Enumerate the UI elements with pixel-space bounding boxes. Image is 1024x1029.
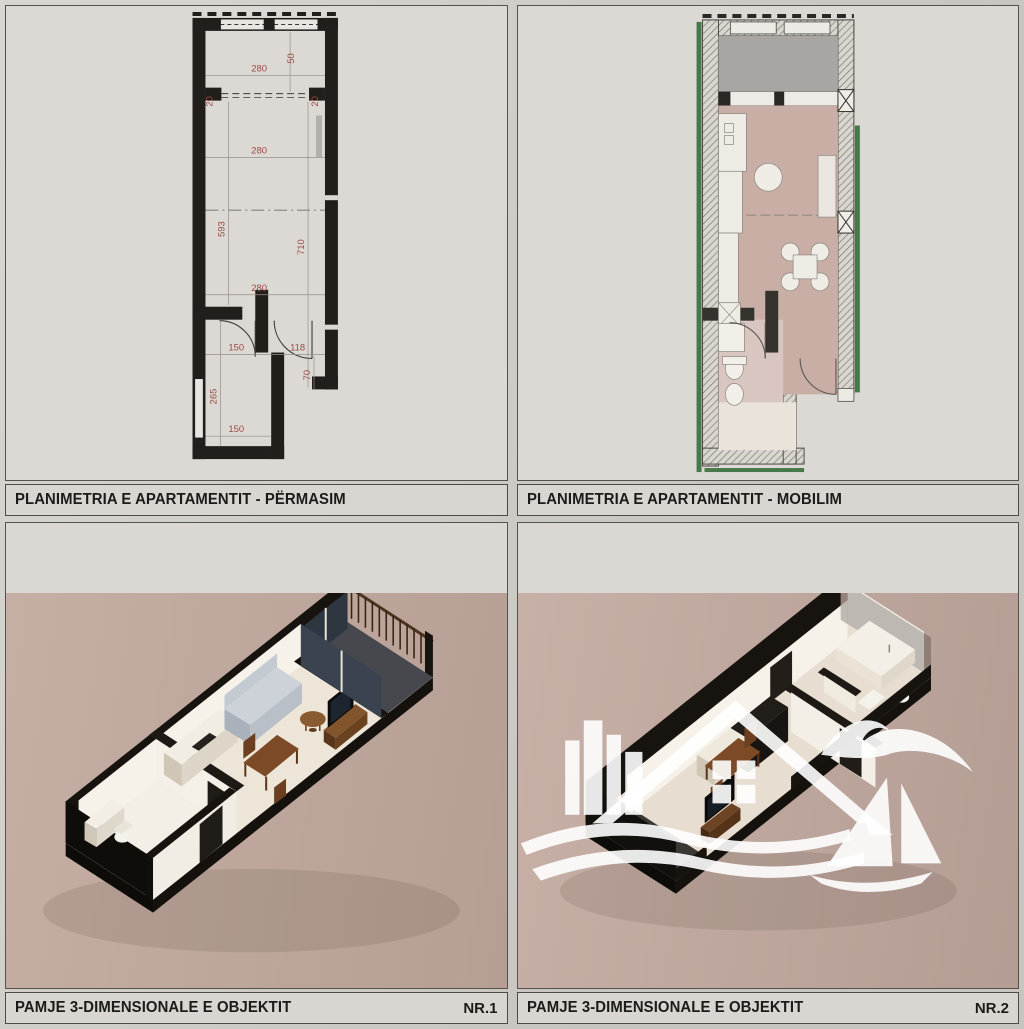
view-2-top-strip xyxy=(518,523,1019,593)
panel-title: PLANIMETRIA E APARTAMENTIT - PËRMASIM xyxy=(15,491,346,509)
architectural-sheet: 280 50 20 20 280 593 710 280 150 118 265… xyxy=(0,0,1024,1029)
panel-grid: 280 50 20 20 280 593 710 280 150 118 265… xyxy=(0,0,1024,1029)
dim-bath-width: 150 xyxy=(228,343,244,354)
dim-bath-depth: 265 xyxy=(208,389,219,405)
panel-number: NR.1 xyxy=(463,1000,497,1017)
isometric-view-2 xyxy=(518,593,1019,988)
view-1-render xyxy=(6,593,507,988)
dim-balcony-depth: 50 xyxy=(286,53,297,64)
isometric-view-1 xyxy=(6,593,507,988)
terrace-floor xyxy=(718,36,837,92)
ground-shadow xyxy=(559,851,956,930)
panel-3d-view-1: PAMJE 3-DIMENSIONALE E OBJEKTIT NR.1 xyxy=(5,522,508,1024)
plan-dimensioned-drawing: 280 50 20 20 280 593 710 280 150 118 265… xyxy=(5,5,508,481)
wall-joint xyxy=(325,325,338,330)
floor-plan-dimensioned: 280 50 20 20 280 593 710 280 150 118 265… xyxy=(6,6,507,480)
view-2-frame xyxy=(517,522,1020,989)
panel-title-bar: PAMJE 3-DIMENSIONALE E OBJEKTIT NR.2 xyxy=(517,992,1020,1024)
dim-living-width: 280 xyxy=(251,145,267,156)
panel-title: PAMJE 3-DIMENSIONALE E OBJEKTIT xyxy=(15,999,291,1017)
dim-bottom-width: 150 xyxy=(228,424,244,435)
panel-plan-dimensioned: 280 50 20 20 280 593 710 280 150 118 265… xyxy=(5,5,508,516)
round-table xyxy=(754,163,782,191)
view-2-render xyxy=(518,593,1019,988)
dim-hall-width: 118 xyxy=(290,343,305,354)
cabinet xyxy=(818,155,836,217)
panel-title: PLANIMETRIA E APARTAMENTIT - MOBILIM xyxy=(527,491,842,509)
dim-wall-right: 20 xyxy=(310,96,321,107)
dim-balcony-width: 280 xyxy=(251,64,267,75)
railing-post xyxy=(425,631,433,678)
panel-title-bar: PLANIMETRIA E APARTAMENTIT - PËRMASIM xyxy=(5,484,508,516)
panel-title: PAMJE 3-DIMENSIONALE E OBJEKTIT xyxy=(527,999,803,1017)
view-1-frame xyxy=(5,522,508,989)
dimension-labels: 280 50 20 20 280 593 710 280 150 118 265… xyxy=(204,53,321,435)
entry-opening xyxy=(837,388,853,401)
panel-3d-view-2: PAMJE 3-DIMENSIONALE E OBJEKTIT NR.2 xyxy=(517,522,1020,1024)
bath-window xyxy=(195,378,204,438)
dim-left-span: 593 xyxy=(216,221,227,237)
dim-wall-left: 20 xyxy=(204,96,215,107)
dim-door-width: 70 xyxy=(302,370,313,381)
view-1-top-strip xyxy=(6,523,507,593)
vestibule-floor xyxy=(718,402,796,450)
panel-plan-furnished: PLANIMETRIA E APARTAMENTIT - MOBILIM xyxy=(517,5,1020,516)
panel-number: NR.2 xyxy=(975,1000,1009,1017)
radiator xyxy=(316,116,322,158)
dim-lower-width: 280 xyxy=(251,283,267,294)
panel-title-bar: PAMJE 3-DIMENSIONALE E OBJEKTIT NR.1 xyxy=(5,992,508,1024)
plan-furnished-drawing xyxy=(517,5,1020,481)
floor-plan-furnished xyxy=(518,6,1019,480)
dim-right-span: 710 xyxy=(296,239,307,255)
wall-joint xyxy=(325,195,338,200)
panel-title-bar: PLANIMETRIA E APARTAMENTIT - MOBILIM xyxy=(517,484,1020,516)
